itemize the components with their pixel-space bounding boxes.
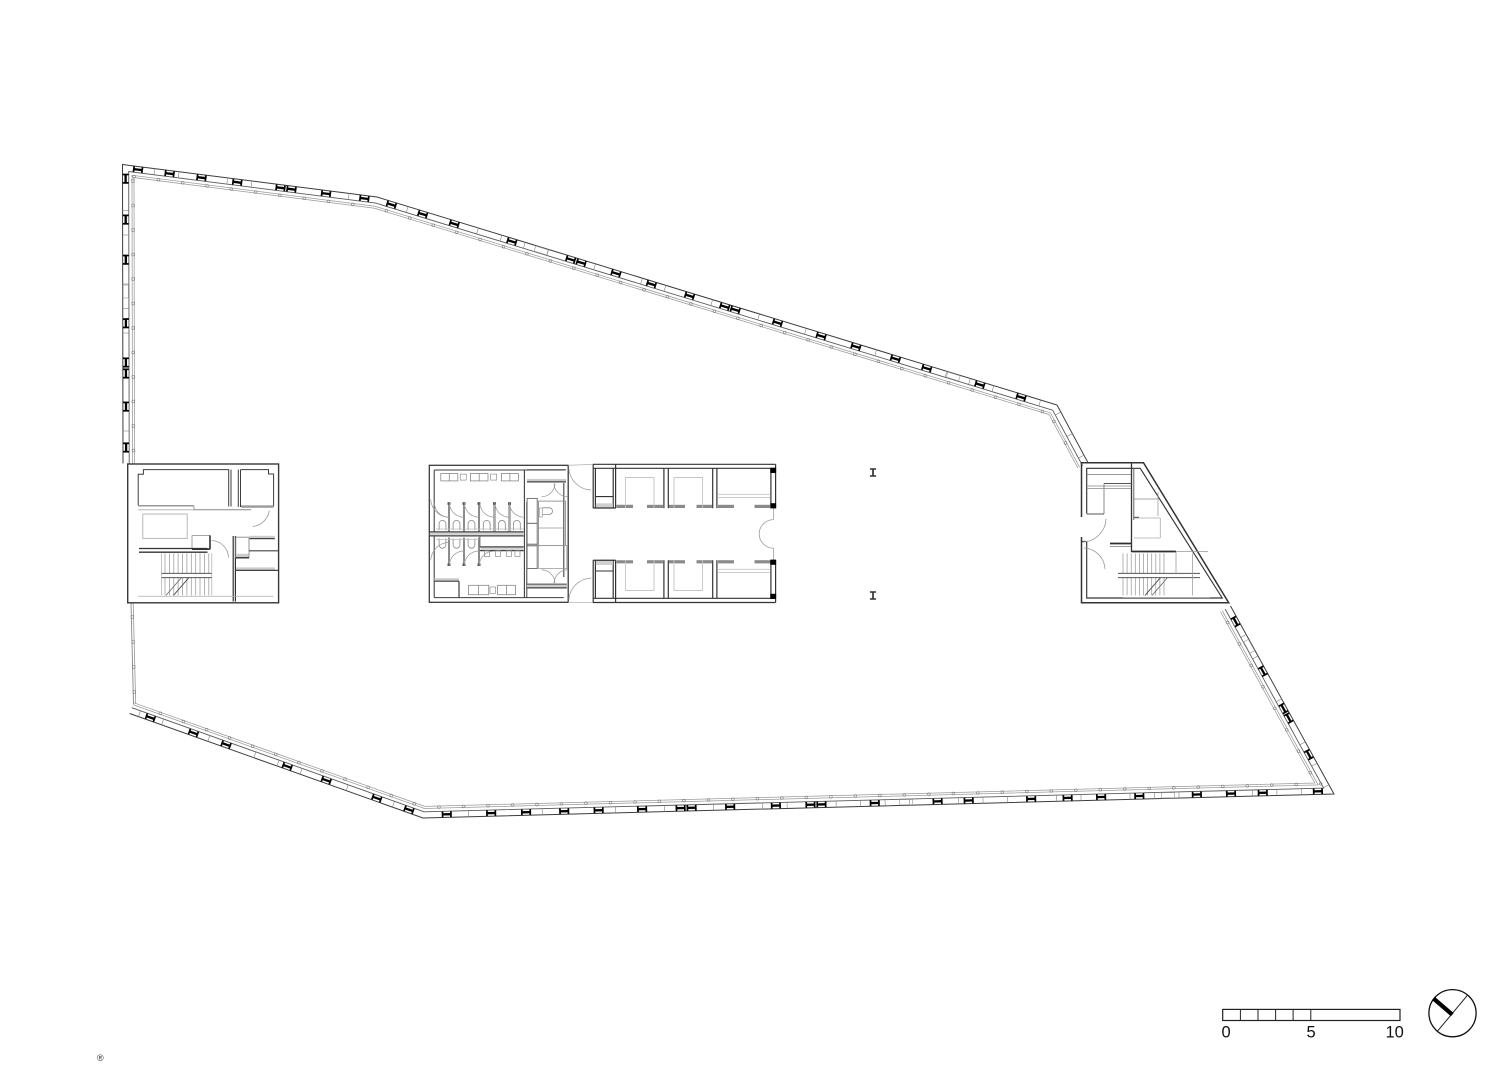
svg-text:0: 0 bbox=[1222, 1024, 1231, 1042]
svg-text:10: 10 bbox=[1386, 1024, 1404, 1042]
svg-text:5: 5 bbox=[1307, 1024, 1316, 1042]
svg-text:®: ® bbox=[97, 1053, 104, 1061]
